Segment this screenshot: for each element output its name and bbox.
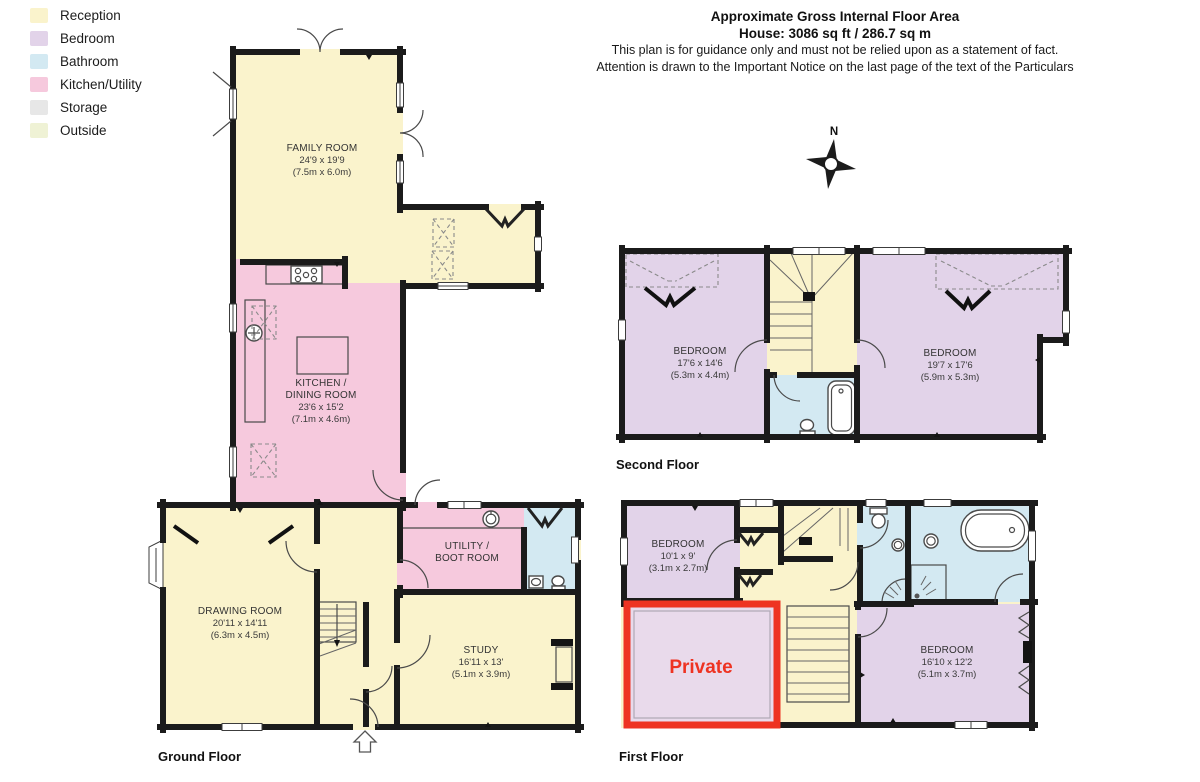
kitchen-metric: (7.1m x 4.6m) [292,414,351,425]
drawing-room-label: DRAWING ROOM [198,606,282,617]
bay-window [149,540,163,590]
drawing-room-dims: 20'11 x 14'11 [213,618,268,629]
first-bedroom-dims: 16'10 x 12'2 [922,657,973,668]
floorplan-svg: FAMILY ROOM 24'9 x 19'9 (7.5m x 6.0m) KI… [0,0,1200,782]
sink-icon [924,534,938,548]
family-room-area [230,49,541,289]
kitchen-dims: 23'6 x 15'2 [298,402,343,413]
north-compass-icon: N [806,126,856,189]
kitchen-label2: DINING ROOM [285,390,356,401]
ground-floor-plan: FAMILY ROOM 24'9 x 19'9 (7.5m x 6.0m) KI… [149,29,581,752]
kitchen-label: KITCHEN / [295,378,346,389]
study-label: STUDY [464,645,499,656]
north-label: N [830,126,838,138]
drawing-room-metric: (6.3m x 4.5m) [211,630,270,641]
first-bedroom-small-dims: 10'1 x 9' [661,551,696,562]
family-room-label: FAMILY ROOM [287,143,358,154]
utility-sink-icon [483,511,499,527]
bathtub-icon [961,510,1029,551]
hob-icon [291,266,322,283]
first-bedroom-small-label: BEDROOM [651,539,704,550]
second-bedroom-left-metric: (5.3m x 4.4m) [671,370,730,381]
utility-label: UTILITY / [445,541,489,552]
family-room-metric: (7.5m x 6.0m) [293,167,352,178]
second-floor-plan: BEDROOM 17'6 x 14'6 (5.3m x 4.4m) BEDROO… [619,248,1070,441]
study-dims: 16'11 x 13' [459,657,504,668]
toilet-icon [801,420,814,431]
family-room-dims: 24'9 x 19'9 [299,155,344,166]
utility-label2: BOOT ROOM [435,553,499,564]
study-metric: (5.1m x 3.9m) [452,669,511,680]
floorplan-page: Reception Bedroom Bathroom Kitchen/Utili… [0,0,1200,782]
first-bedroom-small-metric: (3.1m x 2.7m) [649,563,708,574]
toilet-icon [872,514,885,528]
private-label: Private [669,657,732,678]
second-bedroom-right-metric: (5.9m x 5.3m) [921,372,980,383]
entry-arrow-icon [354,731,376,752]
second-bedroom-left-dims: 17'6 x 14'6 [677,358,722,369]
first-bedroom-label: BEDROOM [920,645,973,656]
first-bedroom-metric: (5.1m x 3.7m) [918,669,977,680]
toilet-icon [552,576,564,586]
second-bedroom-left-label: BEDROOM [673,346,726,357]
second-bedroom-right-label: BEDROOM [923,348,976,359]
second-bedroom-right-dims: 19'7 x 17'6 [927,360,972,371]
first-floor-plan: Private BEDROOM 10'1 x 9' (3.1m x 2.7m) … [621,500,1036,729]
